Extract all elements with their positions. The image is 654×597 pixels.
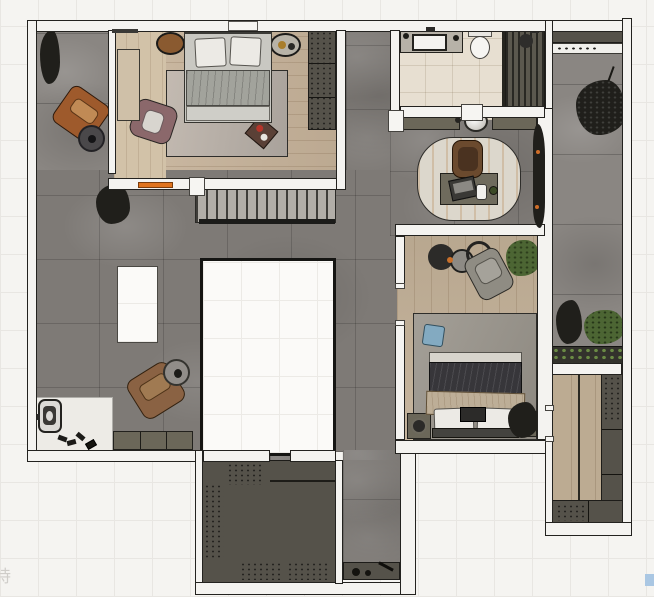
- nightstand-fan: [411, 418, 427, 434]
- watermark-text: 持: [0, 562, 11, 587]
- door-jamb-bathroom: [461, 104, 483, 121]
- wall-bedroom-right-left-a: [395, 236, 405, 288]
- dressing-step-line: [270, 480, 336, 482]
- toilet-bowl: [470, 36, 490, 59]
- wall-dressing-left: [195, 450, 203, 592]
- wall-dressing-right: [400, 452, 416, 595]
- vanity-basin: [412, 34, 447, 51]
- upper-corridor-floor: [346, 28, 392, 174]
- staircase-base-rail: [199, 219, 335, 224]
- wall-exterior-right: [622, 18, 632, 535]
- decor-item: [278, 41, 286, 49]
- wall-study-bedroom-right: [395, 224, 545, 236]
- wall-closet-top: [545, 363, 622, 375]
- shelf-item: [365, 570, 371, 576]
- wall-shower-balcony: [545, 20, 553, 110]
- door-jamb-closet-a: [545, 405, 554, 411]
- cup: [476, 184, 487, 200]
- cabinet-clutter: [603, 376, 623, 420]
- wall-closet-left-b: [545, 440, 553, 535]
- table-item: [88, 135, 96, 143]
- closet-cabinet-bottom: [551, 500, 624, 524]
- corridor-shelf: [343, 562, 400, 580]
- cabinet-clutter: [556, 504, 586, 521]
- floor-opening-small: [117, 266, 158, 343]
- chair-cushion: [68, 97, 100, 126]
- double-bed: [429, 350, 522, 440]
- vanity-item: [403, 33, 409, 39]
- potted-tree: [576, 80, 626, 135]
- wall-dressing-corridor: [335, 460, 343, 584]
- chair-seat: [458, 147, 478, 171]
- wall-dressing-bottom: [195, 582, 416, 595]
- nightstand-decor: [270, 33, 301, 57]
- decor-item: [288, 43, 295, 50]
- closet-floor: [547, 373, 602, 505]
- cabinet-divider: [140, 432, 141, 449]
- intercom-panel: [38, 399, 62, 433]
- tray-item: [259, 132, 269, 142]
- wall-balcony-bedroom1: [108, 30, 116, 174]
- door-jamb-bedroom1: [189, 177, 205, 196]
- pillow: [194, 37, 226, 68]
- cabinet-divider: [602, 429, 623, 430]
- wardrobe-shelf-line: [309, 97, 335, 98]
- vanity-item: [453, 35, 459, 41]
- balcony-shelf-top: [551, 43, 624, 54]
- nightstand-decor: [156, 32, 185, 55]
- wall-dressing-top-a: [203, 450, 270, 462]
- intercom-button: [46, 411, 53, 421]
- wall-bedroom1-right: [336, 30, 346, 190]
- chair-cushion: [473, 256, 505, 287]
- cabinet-divider: [166, 432, 167, 449]
- desk-plant: [489, 186, 498, 195]
- storage-bench: [432, 428, 519, 438]
- chair-cushion: [140, 108, 166, 135]
- wall-dressing-top-b: [290, 450, 336, 462]
- potted-plant: [40, 30, 60, 84]
- pillow: [229, 36, 261, 67]
- floor-plan-canvas: 持: [0, 0, 654, 597]
- shelf-items: [556, 46, 600, 51]
- dressing-clutter: [227, 463, 263, 485]
- door-jamb-closet-b: [545, 436, 554, 442]
- cabinet-divider: [602, 474, 623, 475]
- door-jamb-bedroom-right-a: [395, 283, 405, 289]
- faucet: [426, 27, 435, 32]
- door-jamb-study: [388, 110, 404, 132]
- window-bedroom1-top: [228, 21, 258, 31]
- wall-bathroom-bottom-left: [400, 106, 462, 118]
- wall-bathroom-bottom-right: [482, 106, 545, 118]
- table-item: [174, 369, 182, 378]
- wardrobe-shelf-line: [309, 63, 335, 64]
- dressing-clutter: [240, 562, 282, 580]
- bed-tray: [460, 407, 486, 422]
- corridor-bottom-floor: [343, 460, 400, 564]
- shrub: [584, 310, 624, 344]
- planter-box: [551, 346, 624, 364]
- side-table: [163, 359, 190, 386]
- desk-chair: [452, 140, 483, 178]
- hedge-bloom: [535, 205, 539, 209]
- hedge-bloom: [536, 150, 540, 154]
- shoe-cabinet: [113, 431, 193, 450]
- hedge-plants: [533, 124, 545, 228]
- potted-plant: [506, 240, 540, 276]
- tray-item: [255, 123, 265, 133]
- closet-plank-divider: [578, 373, 580, 503]
- closet-cabinet-right: [601, 373, 624, 505]
- writing-desk: [117, 49, 140, 121]
- floor-opening-large: [200, 258, 336, 456]
- dressing-clutter: [287, 562, 331, 580]
- window-sill-dark: [112, 29, 138, 33]
- nightstand: [407, 413, 431, 439]
- door-jamb-bedroom-right-b: [395, 320, 405, 326]
- selection-square: [645, 574, 654, 586]
- wall-closet-bottom: [545, 522, 632, 536]
- shower-divider: [502, 26, 505, 110]
- table-decor: [447, 257, 453, 263]
- shelf-item: [378, 561, 394, 571]
- wall-exterior-left: [27, 20, 37, 462]
- duvet: [186, 70, 270, 106]
- double-bed: [184, 26, 272, 123]
- wall-bathroom-left: [390, 30, 400, 112]
- laptop-keyboard: [453, 180, 474, 194]
- shrub: [556, 300, 582, 344]
- floor-pillow: [422, 324, 446, 348]
- door-threshold-orange: [138, 182, 173, 188]
- wall-hall-bottom: [27, 450, 197, 462]
- dry-plant: [508, 402, 538, 438]
- foot-sheet: [186, 106, 270, 121]
- shelf-item: [352, 568, 360, 576]
- floor-plant: [96, 184, 130, 224]
- wall-bedroom-right-bottom: [395, 440, 550, 454]
- side-table: [78, 125, 105, 152]
- dressing-clutter: [204, 484, 224, 558]
- wardrobe: [308, 30, 336, 130]
- cabinet-divider: [588, 501, 589, 523]
- wall-bedroom-right-left-b: [395, 322, 405, 440]
- shower-head: [519, 34, 533, 48]
